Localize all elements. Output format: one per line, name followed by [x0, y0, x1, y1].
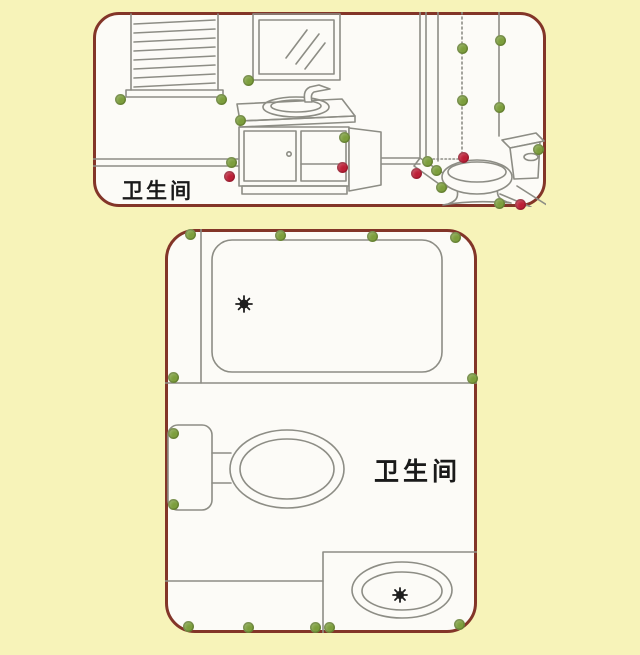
elevation-panel: 卫生间: [93, 12, 546, 207]
mirror: [253, 14, 340, 80]
page: { "figure": { "background_color": "#F7F3…: [0, 0, 640, 655]
bathtub-drain: [236, 296, 252, 312]
open-cabinet-door: [349, 128, 381, 191]
louver-window: [126, 14, 223, 97]
room-label-floorplan: 卫生间: [374, 452, 461, 488]
toilet-plan: [168, 425, 344, 510]
bathroom-treatment-figure: 卫生间: [0, 0, 640, 655]
sink-plan: [352, 562, 452, 618]
wall-corner: [420, 12, 438, 161]
floorplan-drawing: [165, 229, 477, 633]
floor-corner-lines: [500, 186, 546, 207]
floorplan-panel: 卫生间: [165, 229, 477, 633]
room-label-elevation: 卫生间: [122, 175, 194, 205]
sink-cabinet: [237, 99, 381, 194]
